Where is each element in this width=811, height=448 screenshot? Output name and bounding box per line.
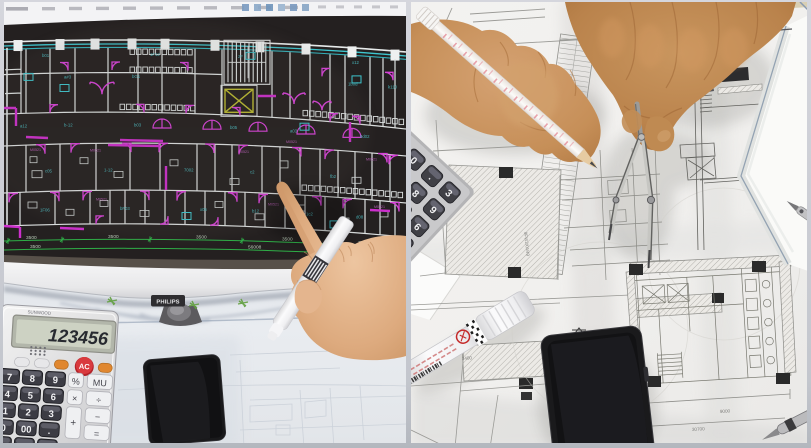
svg-text:30700: 30700: [692, 426, 705, 432]
svg-text:00: 00: [21, 424, 32, 436]
svg-text:3: 3: [48, 409, 54, 420]
svg-text:3500: 3500: [26, 235, 37, 241]
svg-text:9000: 9000: [720, 408, 731, 414]
svg-text:2: 2: [25, 407, 31, 418]
svg-text:8: 8: [29, 374, 35, 385]
svg-text:x12: x12: [352, 60, 360, 65]
svg-text:d08: d08: [356, 215, 364, 220]
svg-text:÷: ÷: [96, 395, 102, 405]
svg-text:9: 9: [52, 375, 58, 386]
svg-text:M0521: M0521: [374, 205, 385, 209]
svg-text:123456: 123456: [47, 325, 109, 349]
svg-text:=: =: [94, 429, 100, 439]
svg-text:M0521: M0521: [366, 158, 377, 162]
svg-text:PHILIPS: PHILIPS: [156, 300, 179, 306]
svg-text:3400: 3400: [462, 355, 473, 361]
svg-text:%: %: [71, 376, 80, 386]
svg-text:AC: AC: [79, 362, 91, 372]
svg-text:6: 6: [50, 392, 56, 403]
svg-text:+: +: [70, 418, 77, 429]
svg-text:−: −: [95, 412, 101, 422]
svg-text:×: ×: [72, 393, 78, 403]
svg-text:7: 7: [6, 372, 12, 383]
svg-text:3500: 3500: [30, 244, 41, 250]
svg-text:MU: MU: [92, 378, 107, 389]
svg-text:56008: 56008: [248, 245, 262, 251]
svg-text:k110: k110: [388, 85, 398, 90]
